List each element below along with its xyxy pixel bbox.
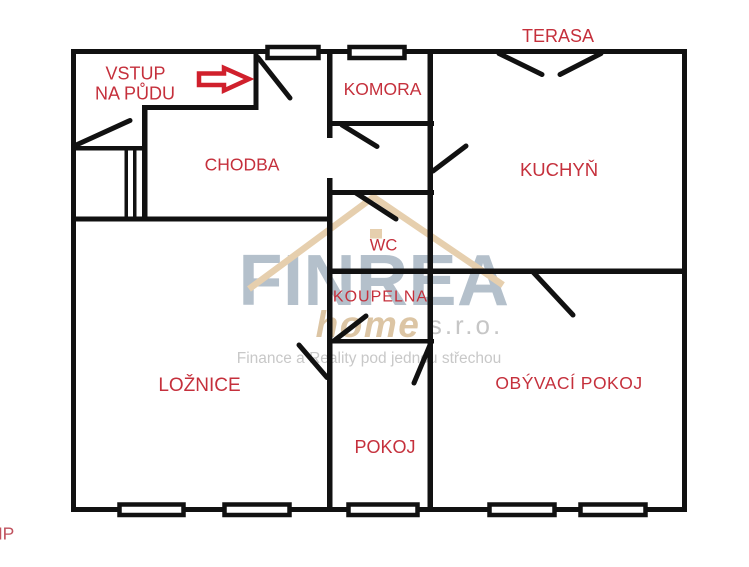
svg-text:CHODBA: CHODBA [205,155,280,175]
svg-text:LOŽNICE: LOŽNICE [158,374,240,396]
svg-text:POKOJ: POKOJ [354,437,415,457]
svg-text:OBÝVACÍ POKOJ: OBÝVACÍ POKOJ [495,373,642,393]
svg-text:s.r.o.: s.r.o. [429,310,503,340]
svg-text:WC: WC [370,237,398,255]
svg-text:KOUPELNA: KOUPELNA [333,289,428,306]
svg-text:VSTUP: VSTUP [105,64,165,84]
svg-text:NP: NP [0,524,14,544]
svg-text:Finance a Reality pod jednou s: Finance a Reality pod jednou střechou [237,350,502,367]
svg-text:KUCHYŇ: KUCHYŇ [520,159,598,180]
svg-text:KOMORA: KOMORA [344,79,422,99]
svg-text:TERASA: TERASA [522,26,594,46]
svg-text:NA PŮDU: NA PŮDU [95,83,175,104]
